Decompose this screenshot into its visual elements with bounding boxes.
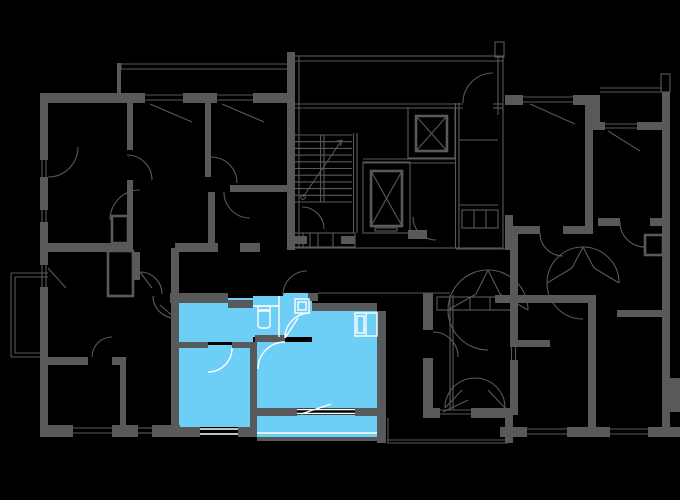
wall bbox=[177, 342, 208, 348]
wall bbox=[295, 236, 307, 244]
wall bbox=[183, 93, 217, 103]
wall bbox=[593, 95, 600, 130]
wall bbox=[208, 192, 215, 243]
wall bbox=[127, 103, 133, 150]
room-kitchen-upper[interactable] bbox=[312, 311, 377, 342]
wall bbox=[510, 360, 518, 415]
wall bbox=[40, 177, 48, 210]
wall bbox=[240, 243, 260, 252]
balcony-post bbox=[117, 63, 121, 93]
wall bbox=[585, 103, 593, 226]
wall bbox=[588, 297, 596, 430]
wall bbox=[120, 363, 126, 427]
wall bbox=[500, 427, 527, 437]
wall bbox=[598, 218, 620, 226]
wall bbox=[47, 357, 88, 365]
wall bbox=[40, 222, 48, 265]
room-bedroom[interactable] bbox=[177, 345, 250, 427]
wall bbox=[40, 287, 48, 437]
wall bbox=[617, 310, 662, 317]
wall bbox=[40, 425, 73, 437]
wall bbox=[423, 358, 433, 415]
elevator-1 bbox=[408, 108, 455, 158]
wall bbox=[505, 95, 523, 105]
wall bbox=[355, 408, 377, 416]
wall bbox=[423, 293, 433, 330]
wall bbox=[650, 218, 668, 226]
balcony-edge bbox=[257, 437, 377, 441]
wall bbox=[170, 293, 228, 303]
wall bbox=[510, 233, 518, 340]
wall bbox=[341, 236, 355, 244]
wall bbox=[648, 427, 670, 437]
wall bbox=[600, 122, 605, 130]
wall bbox=[567, 427, 610, 437]
wall bbox=[171, 427, 200, 437]
wall bbox=[377, 311, 386, 443]
wall bbox=[205, 103, 211, 177]
wall bbox=[312, 303, 377, 311]
floor-plan-viewport bbox=[0, 0, 680, 500]
wall bbox=[230, 185, 290, 192]
room-kitchen-living[interactable] bbox=[255, 342, 377, 408]
wall bbox=[563, 226, 593, 234]
wall bbox=[423, 408, 440, 418]
floor-plan bbox=[0, 0, 680, 500]
wall bbox=[40, 93, 145, 103]
wall bbox=[513, 226, 540, 234]
wall bbox=[255, 335, 285, 342]
wall bbox=[670, 427, 680, 437]
wall bbox=[668, 378, 680, 412]
wall bbox=[228, 300, 253, 308]
wall bbox=[238, 427, 257, 437]
wall bbox=[471, 408, 513, 418]
wall bbox=[255, 408, 297, 416]
highlighted-apartment[interactable] bbox=[177, 293, 377, 441]
wall bbox=[175, 243, 218, 252]
wall bbox=[40, 93, 48, 160]
